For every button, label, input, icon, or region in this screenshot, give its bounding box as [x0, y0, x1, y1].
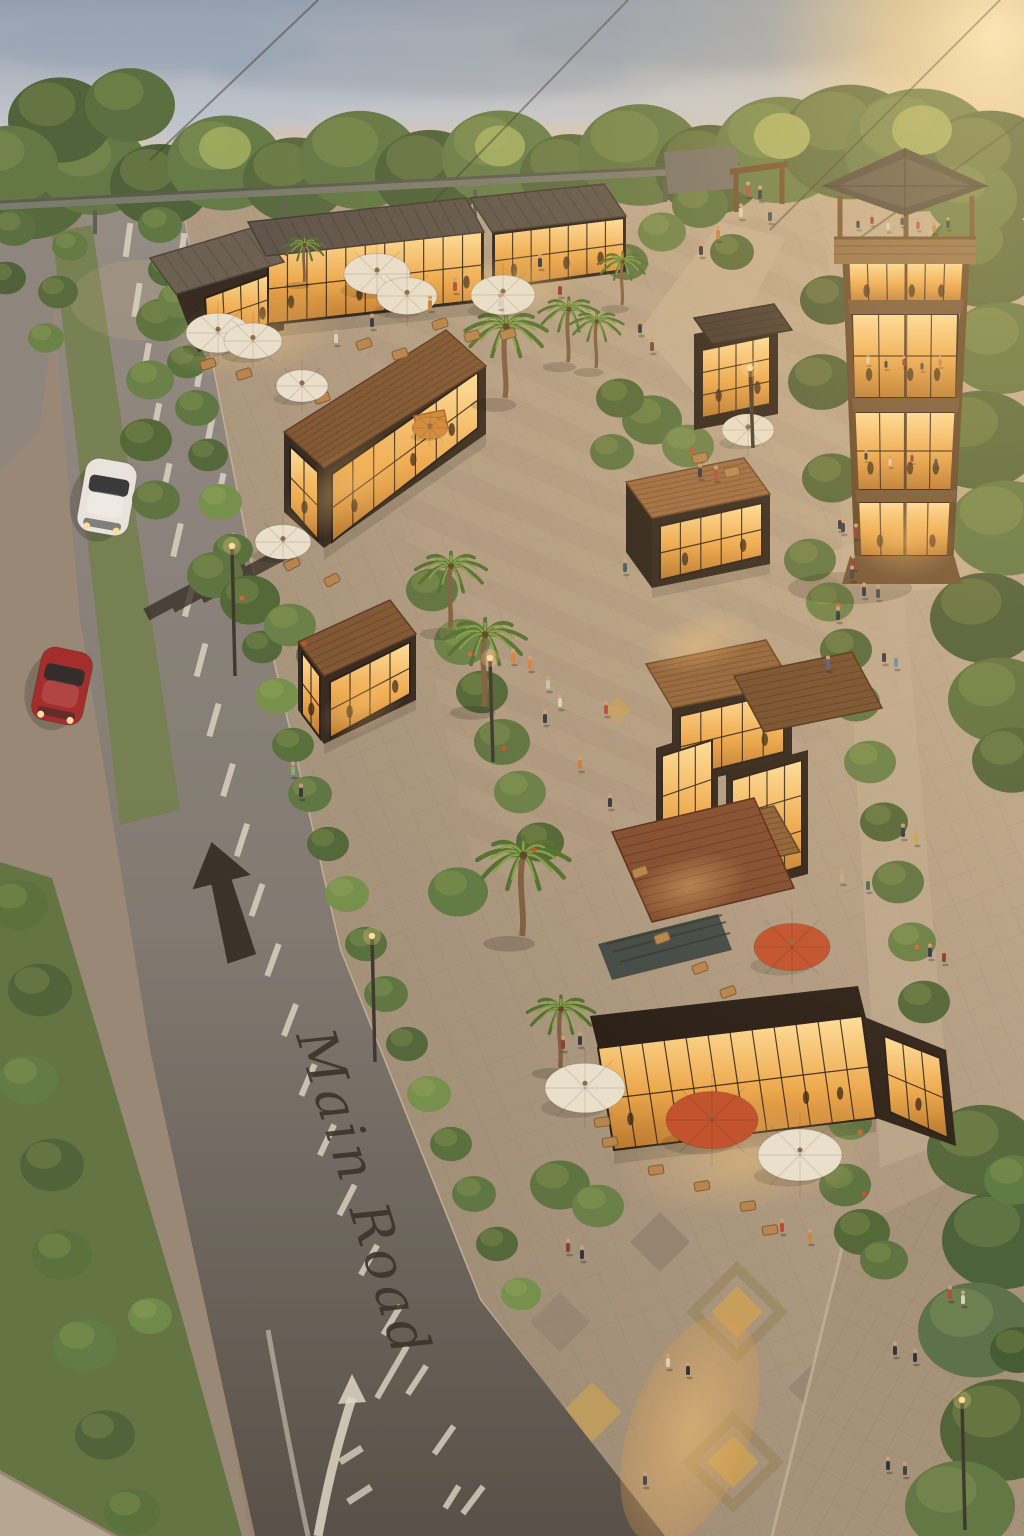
- tower-deck-railing: [834, 238, 976, 264]
- scene-svg: Main Road: [0, 0, 1024, 1536]
- aerial-render: Main Road: [0, 0, 1024, 1536]
